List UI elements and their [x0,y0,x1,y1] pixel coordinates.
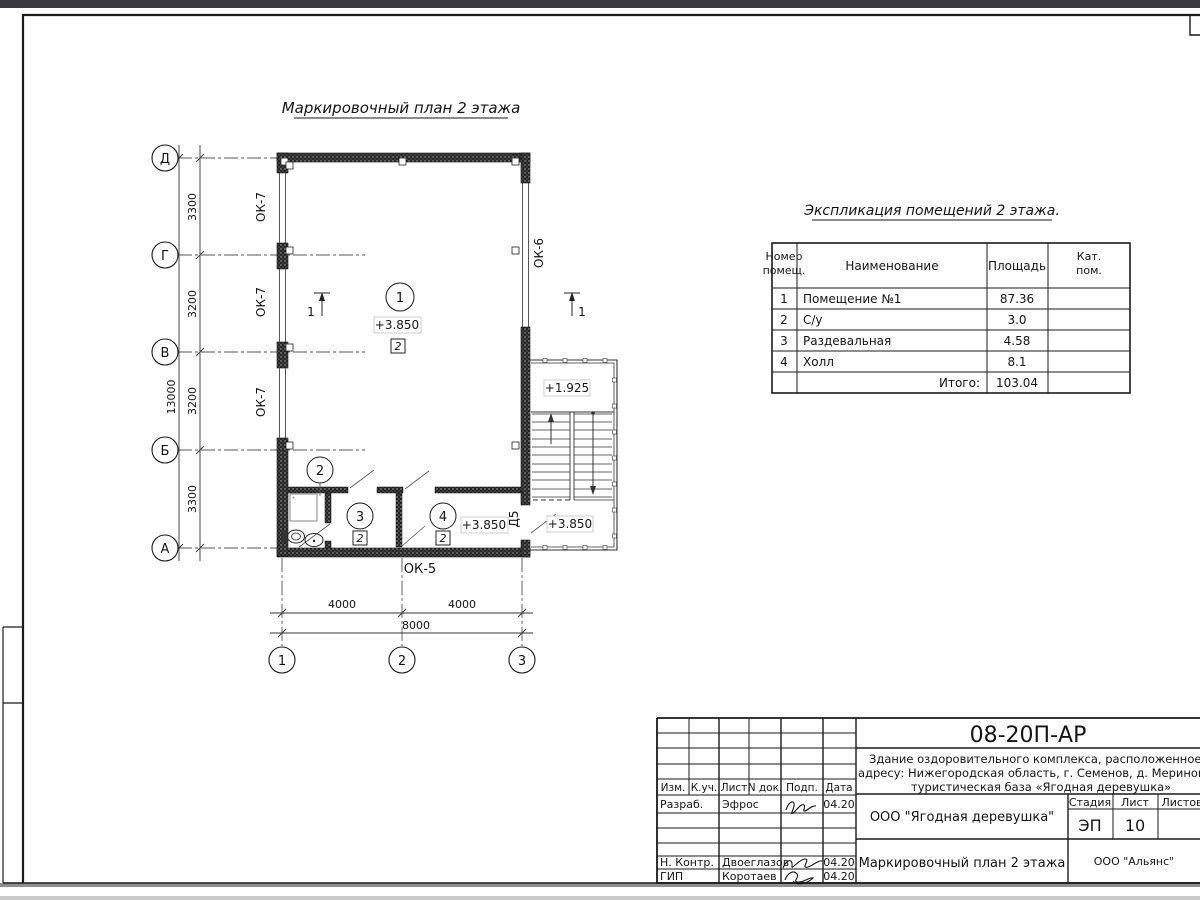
org-name: ООО "Альянс" [1094,855,1175,868]
drawing-sheet: Маркировочный план 2 этажа 3300 [0,0,1200,900]
project-line: Здание оздоровительного комплекса, распо… [869,752,1200,766]
section-number: 1 [578,305,586,319]
cell-area: 4.58 [1004,334,1031,348]
dim-label: 3200 [186,290,199,318]
viewer-bottom-strip [0,896,1200,900]
axis-label: 2 [398,654,406,669]
sheet-number: 10 [1125,816,1145,835]
project-line: туристическая база «Ягодная деревушка» [911,780,1171,794]
dim-label: 3200 [186,387,199,415]
window-tag: ОК-6 [532,238,546,268]
section-number: 1 [307,305,315,319]
sheet-label: Лист [1121,796,1149,809]
category-mark: 2 [357,532,364,545]
col-header: Дата [825,782,852,794]
col-header: Изм. [661,782,686,794]
dim-label: 4000 [328,598,356,611]
total-label: Итого: [939,376,980,390]
axis-label: Г [161,249,169,264]
cell-name: С/у [803,313,823,327]
col-header: К.уч. [691,782,718,794]
cell-area: 87.36 [1000,292,1034,306]
elevation-value: +3.850 [462,518,506,532]
stage-label: Стадия [1069,796,1111,809]
elevation-value: +3.850 [375,318,419,332]
dim-label: 3300 [186,193,199,221]
dim-label: 3300 [186,485,199,513]
window-tag: ОК-7 [254,287,268,317]
col-header: Кат. [1077,250,1101,263]
role-date: 04.20 [823,870,855,883]
plan-title: Маркировочный план 2 этажа [282,99,521,117]
window-tag: ОК-5 [404,562,436,577]
col-header: Номер [765,250,802,263]
category-mark: 2 [440,532,447,545]
window-tag: ОК-7 [254,387,268,417]
client-name: ООО "Ягодная деревушка" [870,810,1054,825]
axis-label: 1 [278,654,286,669]
cell-area: 3.0 [1007,313,1026,327]
cell-num: 4 [780,355,788,369]
document-code: 08-20П-АР [970,723,1087,748]
viewer-top-strip [0,0,1200,8]
project-line: адресу: Нижегородская область, г. Семено… [858,766,1200,780]
stage-value: ЭП [1078,816,1101,835]
axis-label: Д [160,152,170,167]
col-header: Наименование [845,259,938,273]
role-name: Эфрос [722,798,759,811]
col-header: N док. [748,782,783,794]
window-tag: ОК-7 [254,192,268,222]
role-name: Коротаев [722,870,777,883]
elevation-value: +3.850 [548,517,592,531]
role-name: Двоеглазов [722,856,789,869]
category-mark: 2 [395,340,402,353]
role-date: 04.20 [823,798,855,811]
role-date: 04.20 [823,856,855,869]
room-number: 3 [356,510,364,525]
role-label: ГИП [660,870,683,883]
toilet-tank [281,530,287,543]
role-label: Н. Контр. [660,856,714,869]
dim-total-label: 13000 [165,380,178,415]
door-tag: Д5 [507,510,521,527]
room-number: 4 [439,510,447,525]
doc-title: Маркировочный план 2 этажа [859,856,1066,871]
cell-name: Раздевальная [803,334,891,348]
axis-label: Б [161,444,170,459]
dim-total-label: 8000 [402,619,430,632]
room-number: 1 [396,291,404,306]
cell-area: 8.1 [1007,355,1026,369]
explication-title: Экспликация помещений 2 этажа. [803,203,1060,219]
col-header: помещ. [763,264,806,277]
cell-num: 1 [780,292,788,306]
elevation-value: +1.925 [545,381,589,395]
col-header: пом. [1076,264,1102,277]
role-label: Разраб. [660,798,703,811]
axis-label: А [161,542,170,557]
sheets-label: Листов [1161,796,1200,809]
stage-headers: Стадия Лист Листов [1069,796,1200,809]
cell-num: 2 [780,313,788,327]
axis-label: В [161,346,170,361]
room-number: 2 [316,464,324,479]
dim-label: 4000 [448,598,476,611]
col-header: Площадь [988,259,1046,273]
cad-sheet-svg: Маркировочный план 2 этажа 3300 [0,0,1200,900]
axis-label: 3 [518,654,526,669]
cell-num: 3 [780,334,788,348]
total-value: 103.04 [996,376,1038,390]
cell-name: Помещение №1 [803,292,901,306]
col-header: Лист [721,782,748,794]
col-header: Подп. [786,782,818,794]
cell-name: Холл [803,355,834,369]
